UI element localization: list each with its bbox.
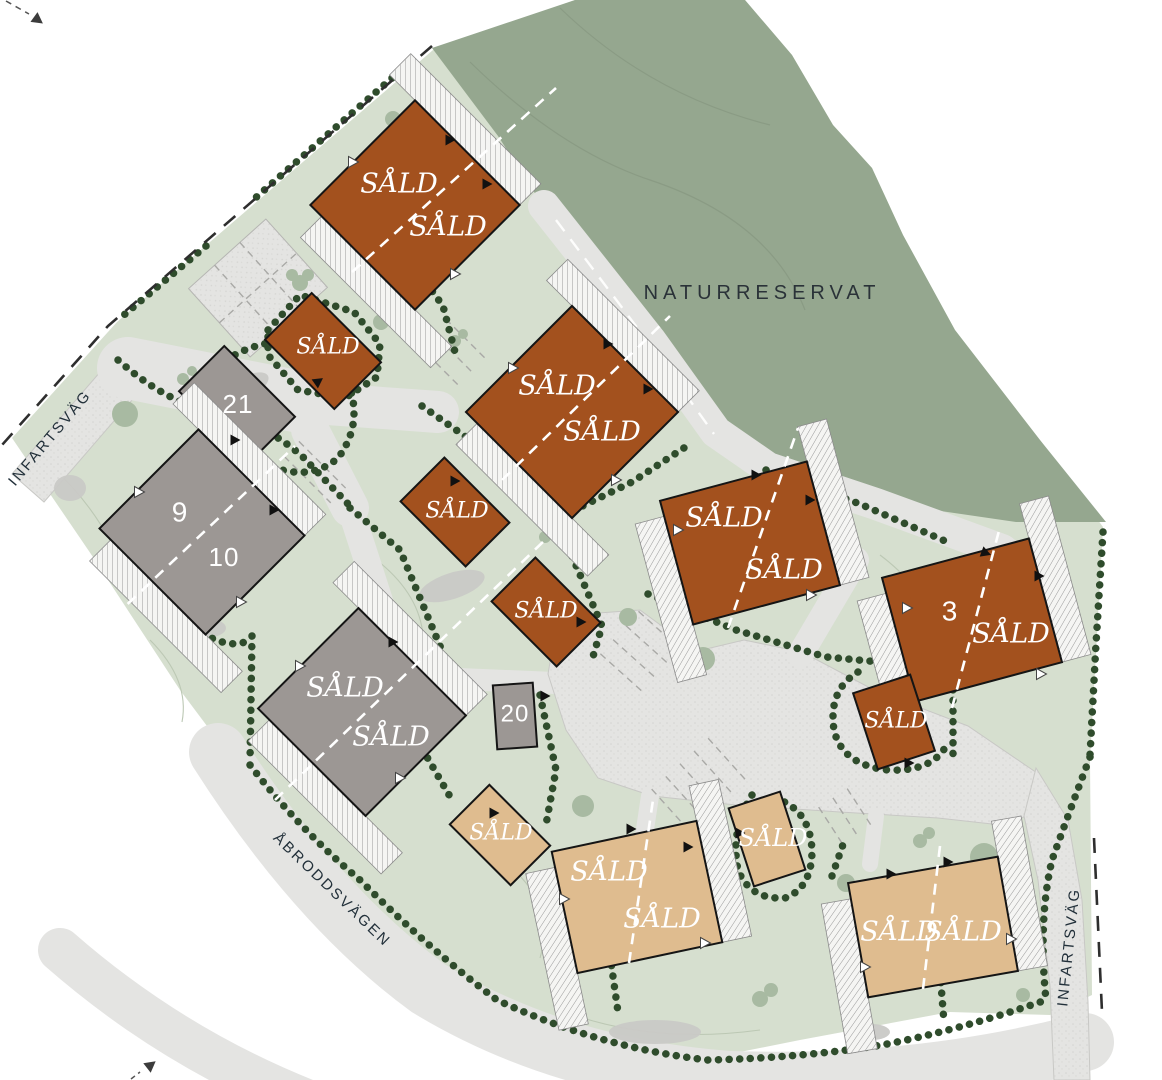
site-plan-canvas: SÅLDSÅLDSÅLDSÅLDSÅLDSÅLDSÅLDSÅLDSÅLD3SÅL…: [0, 0, 1162, 1080]
plot-number-label: 10: [209, 542, 240, 572]
sold-status-label: SÅLD: [296, 332, 360, 360]
sold-status-label: SÅLD: [563, 415, 641, 448]
tree-icon: [923, 827, 935, 839]
sold-status-label: SÅLD: [739, 823, 808, 852]
tree-icon: [302, 269, 314, 281]
plot-number-label: 21: [223, 389, 254, 419]
sold-status-label: SÅLD: [469, 818, 533, 846]
tree-icon: [112, 401, 138, 427]
sold-status-label: SÅLD: [409, 210, 487, 243]
sold-status-label: SÅLD: [352, 720, 430, 753]
tree-icon: [1016, 988, 1030, 1002]
site-plan-svg: SÅLDSÅLDSÅLDSÅLDSÅLDSÅLDSÅLDSÅLDSÅLD3SÅL…: [0, 0, 1162, 1080]
tree-icon: [458, 329, 468, 339]
sold-status-label: SÅLD: [570, 855, 648, 888]
nature-reserve-label: NATURRESERVAT: [644, 282, 881, 304]
plot-number-label: 20: [501, 701, 530, 728]
plot-number-label: 9: [172, 497, 189, 528]
tree-icon: [286, 269, 298, 281]
sold-status-label: SÅLD: [623, 902, 701, 935]
sold-status-label: SÅLD: [864, 706, 928, 734]
tree-icon: [619, 608, 637, 626]
sold-status-label: SÅLD: [518, 369, 596, 402]
corner-arrow-icon: [131, 1056, 159, 1079]
sold-status-label: SÅLD: [745, 553, 823, 586]
north-arrow-icon: [6, 1, 46, 28]
sold-status-label: SÅLD: [514, 596, 578, 624]
tree-icon: [764, 983, 778, 997]
sold-status-label: SÅLD: [685, 501, 763, 534]
sold-status-label: SÅLD: [425, 496, 489, 524]
plot-number-label: 3: [942, 596, 959, 627]
sold-status-label: SÅLD: [972, 617, 1050, 650]
sold-status-label: SÅLD: [306, 671, 384, 704]
tree-icon: [572, 795, 594, 817]
sold-status-label: SÅLD: [360, 167, 438, 200]
sold-status-label: SÅLD: [924, 915, 1002, 948]
